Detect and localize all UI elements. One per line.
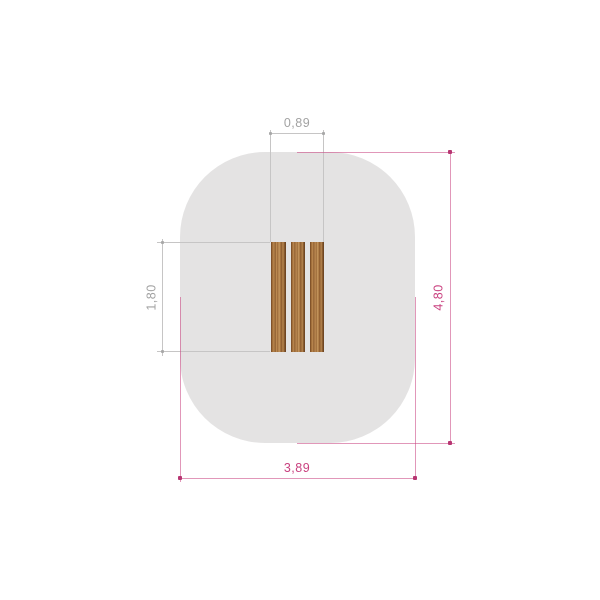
dimension-endpoint-dot <box>322 132 325 135</box>
extension-line-zone-height-top <box>297 152 455 153</box>
dimension-endpoint-dot <box>413 476 417 480</box>
dimension-line-zone-height <box>450 152 451 444</box>
dimension-label-plank-width: 0,89 <box>267 116 327 131</box>
dimension-endpoint-dot <box>161 241 164 244</box>
extension-line-plank-width-left <box>270 130 271 242</box>
extension-line-plank-height-bottom <box>157 351 270 352</box>
dimension-endpoint-dot <box>269 132 272 135</box>
dimension-line-zone-width <box>180 478 416 479</box>
dimension-label-zone-width: 3,89 <box>265 461 329 476</box>
wooden-plank-3 <box>310 242 324 352</box>
dimension-label-zone-height: 4,80 <box>432 266 447 330</box>
extension-line-zone-width-right <box>415 297 416 480</box>
dimension-line-plank-width <box>270 133 324 134</box>
dimension-endpoint-dot <box>178 476 182 480</box>
wooden-plank-2 <box>291 242 305 352</box>
dimension-endpoint-dot <box>161 350 164 353</box>
dimension-endpoint-dot <box>448 150 452 154</box>
extension-line-zone-height-bottom <box>297 443 455 444</box>
dimension-line-plank-height <box>162 239 163 356</box>
extension-line-plank-height-top <box>157 242 270 243</box>
wooden-plank-1 <box>271 242 286 352</box>
dimension-label-plank-height: 1,80 <box>145 268 160 328</box>
extension-line-plank-width-right <box>323 130 324 242</box>
drawing-canvas: 0,89 1,80 4,80 3,89 <box>0 0 600 600</box>
dimension-endpoint-dot <box>448 441 452 445</box>
extension-line-zone-width-left <box>180 297 181 482</box>
